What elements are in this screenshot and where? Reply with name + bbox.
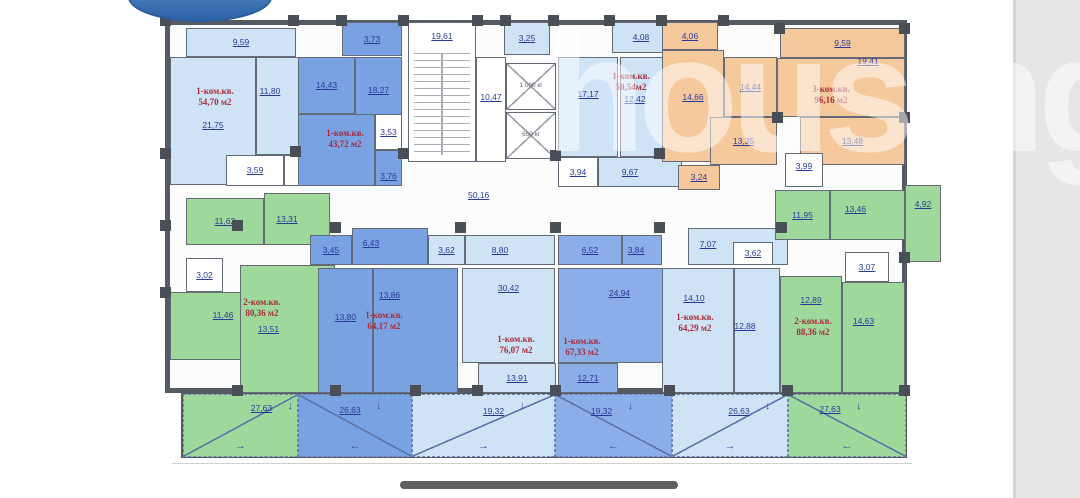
room-3,24: 3,24 <box>678 165 720 190</box>
room-area-label: 30,42 <box>498 284 519 293</box>
room-12,71: 12,71 <box>558 363 618 393</box>
room-area-label: 12,88 <box>734 322 755 331</box>
room-9,59: 9,59 <box>780 28 905 58</box>
apartment-label: 1-ком.кв.54,70 м2 <box>174 86 256 108</box>
room-area-label: 14,66 <box>682 93 703 102</box>
room-10,47: 10,47 <box>476 57 506 162</box>
wall-pillar <box>656 15 667 26</box>
wall-pillar <box>654 148 665 159</box>
wall-pillar <box>899 112 910 123</box>
elevator-650кг: 650 кг <box>506 112 556 159</box>
room-area-label: 3,07 <box>859 263 876 272</box>
wall-pillar <box>232 385 243 396</box>
room-6,43: 6,43 <box>352 228 428 265</box>
room-area-label: 12,42 <box>624 95 645 104</box>
corridor-area-label: 50,16 <box>468 191 489 200</box>
wall-pillar <box>290 146 301 157</box>
apartment-label: 1-ком.кв.64,29 м2 <box>656 312 734 334</box>
wall-pillar <box>288 15 299 26</box>
room-4,06: 4,06 <box>662 22 718 50</box>
wall-pillar <box>500 15 511 26</box>
room-3,02: 3,02 <box>186 258 223 292</box>
apartment-label: 2-ком.кв.88,36 м2 <box>776 316 850 338</box>
room-area-label: 14,63 <box>853 317 874 326</box>
room-area-label: 10,47 <box>480 93 501 102</box>
room-13,35: 13,35 <box>710 117 777 165</box>
wall-pillar <box>550 150 561 161</box>
terrace-right-arrow-icon: → <box>478 441 489 452</box>
room-area-label: 3,24 <box>691 173 708 182</box>
room-area-label: 9,59 <box>834 39 851 48</box>
room-9,59: 9,59 <box>186 28 296 57</box>
room-area-label: 4,06 <box>682 32 699 41</box>
wall-pillar <box>664 385 675 396</box>
room-area-label: 6,52 <box>582 246 599 255</box>
terrace-down-arrow-icon: ↓ <box>856 401 862 412</box>
room-area-label: 13,51 <box>258 325 279 334</box>
room-13,91: 13,91 <box>478 363 556 393</box>
wall-pillar <box>330 222 341 233</box>
room-area-label: 3,99 <box>796 162 813 171</box>
room-area-label: 3,73 <box>364 35 381 44</box>
room-3,99: 3,99 <box>785 153 823 187</box>
room-area-label: 8,80 <box>492 246 509 255</box>
room-area-label: 27,63 <box>819 405 840 414</box>
terrace-19,32: 19,32↓← <box>555 394 672 457</box>
room-3,07: 3,07 <box>845 252 889 282</box>
next-image-panel[interactable] <box>1013 0 1080 498</box>
room-area-label: 26,63 <box>728 407 749 416</box>
room-area-label: 3,25 <box>519 34 536 43</box>
room-area-label: 7,07 <box>700 240 717 249</box>
terrace-19,32: 19,32↓→ <box>412 394 555 457</box>
room-area-label: 13,86 <box>379 291 400 300</box>
wall-pillar <box>654 222 665 233</box>
room-area-label: 3,62 <box>745 249 762 258</box>
wall-pillar <box>160 220 171 231</box>
wall-pillar <box>336 15 347 26</box>
stairwell-19,61: 19,61 <box>408 22 476 162</box>
ground-line <box>172 463 912 464</box>
room-8,80: 8,80 <box>465 235 555 265</box>
apartment-label: 3-ком.кв.96,16 м2 <box>788 84 874 106</box>
room-area-label: 14,43 <box>316 81 337 90</box>
room-area-label: 6,43 <box>363 239 380 248</box>
room-area-label: 13,91 <box>506 374 527 383</box>
room-3,62: 3,62 <box>428 235 465 265</box>
wall-pillar <box>899 252 910 263</box>
room-14,63: 14,63 <box>842 282 905 393</box>
wall-pillar <box>774 23 785 34</box>
room-area-label: 14,10 <box>683 294 704 303</box>
wall-pillar <box>899 23 910 34</box>
wall-pillar <box>398 15 409 26</box>
room-area-label: 18,27 <box>368 86 389 95</box>
room-14,44: 14,44 <box>724 57 777 117</box>
room-area-label: 11,80 <box>260 87 281 96</box>
wall-pillar <box>330 385 341 396</box>
terrace-down-arrow-icon: ↓ <box>288 401 294 412</box>
wall-pillar <box>550 222 561 233</box>
terrace-down-arrow-icon: ↓ <box>520 401 526 412</box>
room-area-label: 19,41 <box>857 57 878 66</box>
room-area-label: 21,75 <box>202 121 223 130</box>
room-area-label: 12,89 <box>800 296 821 305</box>
room-3,62: 3,62 <box>733 242 773 265</box>
wall-pillar <box>232 220 243 231</box>
apartment-label: 1-ком.кв.64,17 м2 <box>348 310 420 332</box>
stair-treads-icon <box>414 53 470 155</box>
room-area-label: 9,67 <box>622 168 639 177</box>
room-area-label: 26,63 <box>339 406 360 415</box>
elevator-capacity-label: 650 кг <box>522 132 540 139</box>
room-3,59: 3,59 <box>226 155 284 186</box>
terrace-right-arrow-icon: → <box>725 441 736 452</box>
wall-pillar <box>782 385 793 396</box>
room-13,46: 13,46 <box>830 190 905 240</box>
room-area-label: 3,62 <box>438 246 455 255</box>
wall-pillar <box>899 385 910 396</box>
apartment-label: 1-ком.кв.67,33 м2 <box>546 336 618 358</box>
room-11,62: 11,62 <box>186 198 264 245</box>
wall-pillar <box>472 385 483 396</box>
room-area-label: 3,02 <box>196 271 213 280</box>
apartment-label: 1-ком.кв.76,07 м2 <box>480 334 552 356</box>
wall-pillar <box>604 15 615 26</box>
room-area-label: 14,44 <box>740 83 761 92</box>
room-3,25: 3,25 <box>504 22 550 55</box>
room-unlabeled <box>298 114 375 186</box>
room-area-label: 9,59 <box>233 38 250 47</box>
screenshot: housing 9,5921,7511,803,597,973,7314,431… <box>0 0 1080 498</box>
room-area-label: 3,76 <box>380 172 397 181</box>
terrace-down-arrow-icon: ↓ <box>765 401 771 412</box>
room-area-label: 13,46 <box>845 205 866 214</box>
wall-pillar <box>550 385 561 396</box>
room-3,94: 3,94 <box>558 157 598 187</box>
room-area-label: 4,92 <box>915 200 932 209</box>
room-area-label: 13,31 <box>276 215 297 224</box>
elevator-capacity-label: 1 000 кг <box>519 83 542 90</box>
wall-pillar <box>160 148 171 159</box>
room-area-label: 24,94 <box>609 289 630 298</box>
room-area-label: 3,59 <box>247 166 264 175</box>
room-area-label: 19,61 <box>431 32 452 41</box>
room-4,92: 4,92 <box>905 185 941 262</box>
terrace-27,63: 27,63↓← <box>788 394 906 457</box>
wall-pillar <box>718 15 729 26</box>
wall-pillar <box>472 15 483 26</box>
home-indicator[interactable] <box>400 481 678 489</box>
terrace-27,63: 27,63↓→ <box>183 394 298 457</box>
elevator-1000кг: 1 000 кг <box>506 63 556 110</box>
room-area-label: 4,08 <box>633 33 650 42</box>
wall-pillar <box>776 222 787 233</box>
apartment-label: 1-ком.кв.50,54м2 <box>594 71 668 93</box>
wall-pillar <box>548 15 559 26</box>
room-area-label: 27,63 <box>251 404 272 413</box>
room-area-label: 3,94 <box>570 168 587 177</box>
room-3,45: 3,45 <box>310 235 352 265</box>
wall-pillar <box>455 222 466 233</box>
terrace-down-arrow-icon: ↓ <box>628 401 634 412</box>
room-area-label: 11,95 <box>792 211 813 220</box>
wall-pillar <box>410 385 421 396</box>
room-12,88: 12,88 <box>734 268 780 393</box>
room-area-label: 13,48 <box>842 137 863 146</box>
terrace-26,63: 26,63↓→ <box>672 394 788 457</box>
room-area-label: 3,84 <box>628 246 645 255</box>
room-area-label: 3,45 <box>323 246 340 255</box>
terrace-down-arrow-icon: ↓ <box>376 401 382 412</box>
terrace-26,63: 26,63↓← <box>298 394 412 457</box>
room-14,43: 14,43 <box>298 57 355 114</box>
room-6,52: 6,52 <box>558 235 622 265</box>
terrace-left-arrow-icon: ← <box>608 441 619 452</box>
terrace-left-arrow-icon: ← <box>842 441 853 452</box>
room-area-label: 13,35 <box>733 137 754 146</box>
apartment-label: 2-ком.кв.80,36 м2 <box>224 297 300 319</box>
terrace-left-arrow-icon: ← <box>350 441 361 452</box>
room-3,73: 3,73 <box>342 22 402 56</box>
terrace-right-arrow-icon: → <box>235 441 246 452</box>
room-3,84: 3,84 <box>622 235 662 265</box>
room-area-label: 19,32 <box>483 407 504 416</box>
apartment-label: 1-ком.кв.43,72 м2 <box>306 128 384 150</box>
wall-pillar <box>160 287 171 298</box>
room-area-label: 12,71 <box>577 374 598 383</box>
wall-pillar <box>398 148 409 159</box>
room-area-label: 19,32 <box>591 407 612 416</box>
wall-pillar <box>772 112 783 123</box>
